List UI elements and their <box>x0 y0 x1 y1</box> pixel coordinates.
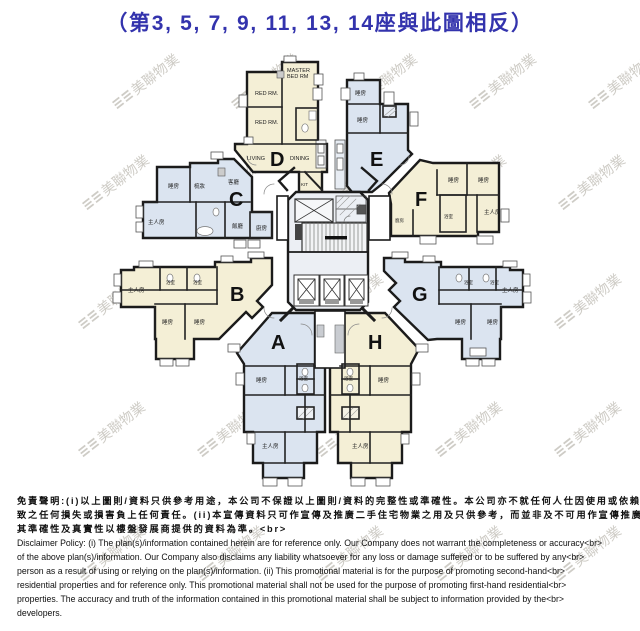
svg-text:C: C <box>229 189 243 211</box>
svg-text:廚房: 廚房 <box>256 224 268 232</box>
svg-text:睡房: 睡房 <box>162 318 174 326</box>
svg-text:主人房: 主人房 <box>502 286 519 294</box>
svg-text:睡房: 睡房 <box>378 376 390 384</box>
svg-text:浴室: 浴室 <box>464 279 473 286</box>
svg-text:E: E <box>370 149 383 171</box>
svg-text:睡房: 睡房 <box>355 89 367 97</box>
svg-text:DINING: DINING <box>290 156 309 162</box>
svg-text:浴室: 浴室 <box>344 375 353 382</box>
svg-text:睡房: 睡房 <box>168 182 180 190</box>
svg-text:睡房: 睡房 <box>448 176 460 184</box>
svg-text:浴室: 浴室 <box>166 279 175 286</box>
svg-text:睡房: 睡房 <box>256 376 268 384</box>
svg-text:BED RM: BED RM <box>287 74 309 80</box>
svg-text:睡房: 睡房 <box>194 318 206 326</box>
svg-text:主人房: 主人房 <box>352 442 369 450</box>
svg-text:浴室: 浴室 <box>193 279 202 286</box>
svg-text:B: B <box>230 284 244 306</box>
svg-text:LIVING: LIVING <box>247 156 265 162</box>
svg-text:浴室: 浴室 <box>490 279 499 286</box>
svg-text:RED RM.: RED RM. <box>255 120 279 126</box>
svg-text:睡房: 睡房 <box>478 176 490 184</box>
svg-text:主人房: 主人房 <box>484 208 501 216</box>
svg-text:客廳: 客廳 <box>228 178 240 186</box>
svg-text:睡房: 睡房 <box>357 116 369 124</box>
svg-text:RED RM.: RED RM. <box>255 91 279 97</box>
svg-text:梳妝: 梳妝 <box>194 182 206 190</box>
svg-text:主人房: 主人房 <box>148 218 165 226</box>
svg-text:H: H <box>368 332 382 354</box>
svg-text:浴室: 浴室 <box>444 213 453 220</box>
svg-text:睡房: 睡房 <box>487 318 499 326</box>
svg-text:主人房: 主人房 <box>128 286 145 294</box>
svg-text:飯廳: 飯廳 <box>232 222 244 230</box>
svg-text:F: F <box>415 189 427 211</box>
svg-text:廚房: 廚房 <box>395 217 404 224</box>
svg-text:G: G <box>412 284 428 306</box>
svg-text:A: A <box>271 332 285 354</box>
svg-text:主人房: 主人房 <box>262 442 279 450</box>
svg-text:睡房: 睡房 <box>455 318 467 326</box>
svg-text:D: D <box>270 149 284 171</box>
svg-text:浴室: 浴室 <box>299 375 308 382</box>
svg-text:KIT: KIT <box>301 182 308 187</box>
